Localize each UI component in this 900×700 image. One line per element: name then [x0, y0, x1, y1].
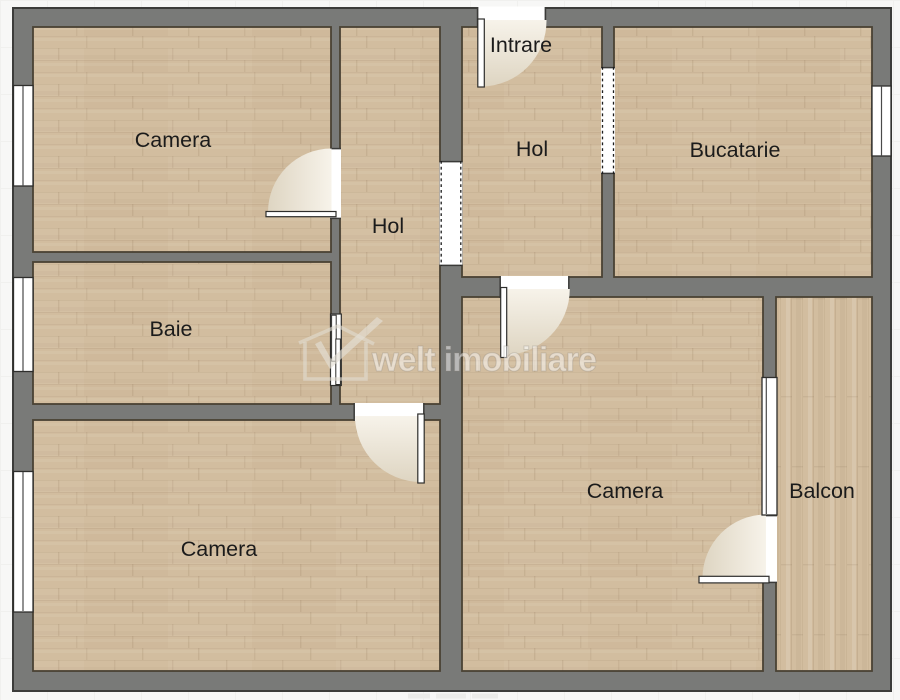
svg-text:Intrare: Intrare	[490, 33, 552, 57]
svg-text:Hol: Hol	[372, 214, 404, 238]
svg-text:Baie: Baie	[149, 317, 192, 341]
svg-text:Camera: Camera	[135, 128, 212, 152]
svg-text:welt imobiliare: welt imobiliare	[371, 341, 596, 379]
svg-text:Camera: Camera	[587, 479, 664, 503]
svg-text:Hol: Hol	[516, 137, 548, 161]
svg-text:Balcon: Balcon	[789, 479, 855, 503]
svg-text:Bucatarie: Bucatarie	[690, 138, 781, 162]
svg-text:Camera: Camera	[181, 537, 258, 561]
